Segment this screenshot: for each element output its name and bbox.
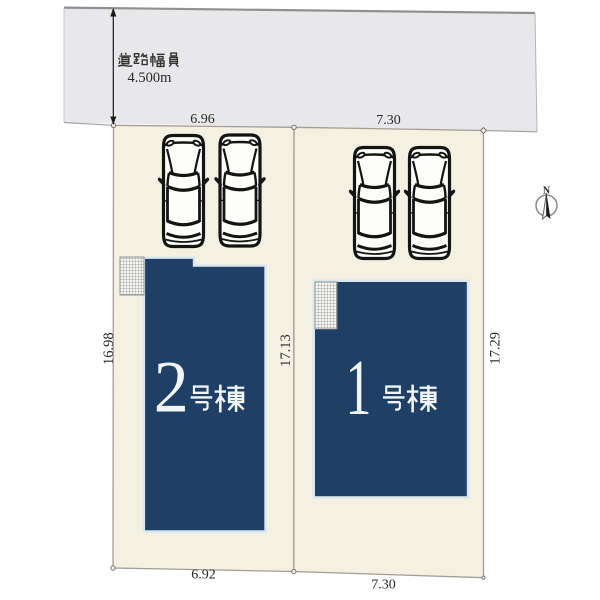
svg-text:16.98: 16.98 <box>101 332 117 365</box>
svg-text:1: 1 <box>345 344 371 431</box>
svg-text:6.96: 6.96 <box>190 112 215 127</box>
svg-text:17.13: 17.13 <box>278 334 294 367</box>
svg-text:7.30: 7.30 <box>376 113 401 128</box>
svg-text:4.500m: 4.500m <box>128 70 173 86</box>
svg-text:6.92: 6.92 <box>191 568 216 583</box>
svg-text:17.29: 17.29 <box>488 332 504 365</box>
svg-text:N: N <box>543 186 551 197</box>
svg-text:7.30: 7.30 <box>371 578 396 593</box>
svg-text:2: 2 <box>154 346 189 428</box>
